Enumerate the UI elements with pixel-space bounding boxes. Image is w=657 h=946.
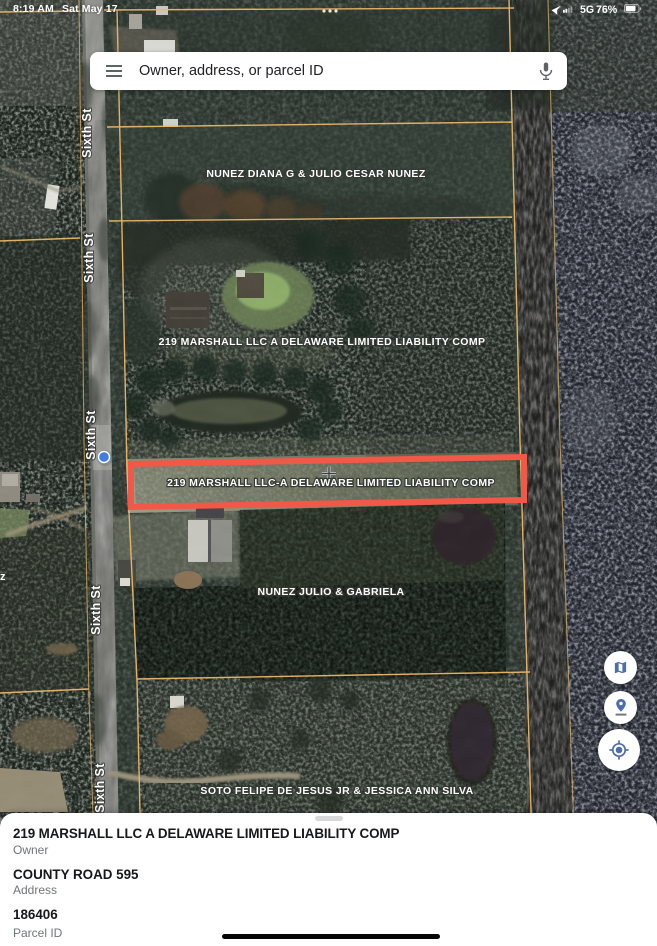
svg-text:NUNEZ JULIO & GABRIELA: NUNEZ JULIO & GABRIELA xyxy=(257,586,404,598)
svg-text:5G: 5G xyxy=(580,4,594,16)
svg-text:NUNEZ DIANA G & JULIO CESAR NU: NUNEZ DIANA G & JULIO CESAR NUNEZ xyxy=(206,168,426,180)
svg-text:Sixth St: Sixth St xyxy=(82,233,96,283)
svg-text:Sixth St: Sixth St xyxy=(80,108,94,158)
svg-text:SOTO FELIPE DE JESUS JR & JESS: SOTO FELIPE DE JESUS JR & JESSICA ANN SI… xyxy=(200,785,473,797)
svg-text:Sixth St: Sixth St xyxy=(89,585,103,635)
svg-text:z: z xyxy=(0,571,6,583)
svg-text:Sixth St: Sixth St xyxy=(93,763,107,813)
svg-text:Sixth St: Sixth St xyxy=(84,410,98,460)
svg-text:219 MARSHALL LLC-A DELAWARE LI: 219 MARSHALL LLC-A DELAWARE LIMITED LIAB… xyxy=(167,477,495,489)
svg-text:219 MARSHALL LLC A DELAWARE LI: 219 MARSHALL LLC A DELAWARE LIMITED LIAB… xyxy=(159,336,486,348)
svg-text:76%: 76% xyxy=(596,4,618,16)
